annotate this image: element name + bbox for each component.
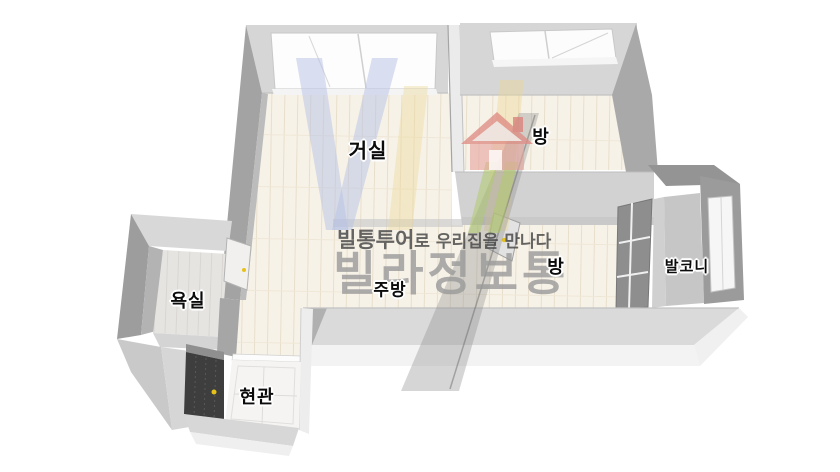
south-wall: [303, 308, 748, 366]
label-entrance: 현관: [239, 383, 274, 409]
balcony-west-face: [652, 197, 666, 308]
label-balcony: 발코니: [665, 256, 709, 277]
balcony-floor: [664, 193, 704, 306]
bedroom-mid-east-window: [616, 199, 652, 310]
logo-house-door: [489, 150, 502, 170]
bedroom-top-window: [490, 29, 616, 61]
label-living-room: 거실: [349, 135, 388, 164]
balcony: [648, 165, 744, 308]
label-bedroom-mid: 방: [547, 253, 565, 279]
south-wall-top-face: [303, 308, 739, 345]
south-wall-outer-face: [303, 345, 700, 366]
living-window: [271, 33, 437, 89]
bathroom-door-leaf: [224, 238, 251, 290]
front-door-handle: [212, 390, 217, 395]
label-kitchen: 주방: [373, 276, 406, 301]
floor-plan-canvas: 빌통투어로 우리집을 만나다 빌라정보통 거실 방 방 발코니 욕실 주방 현관: [0, 0, 840, 472]
watermark-brand: 빌라정보통: [333, 251, 569, 298]
hallway-west-wall: [217, 298, 240, 357]
label-bedroom-top: 방: [532, 123, 550, 149]
label-bathroom: 욕실: [170, 287, 205, 313]
hallway-floor: [233, 308, 303, 356]
door-handle: [242, 268, 246, 272]
